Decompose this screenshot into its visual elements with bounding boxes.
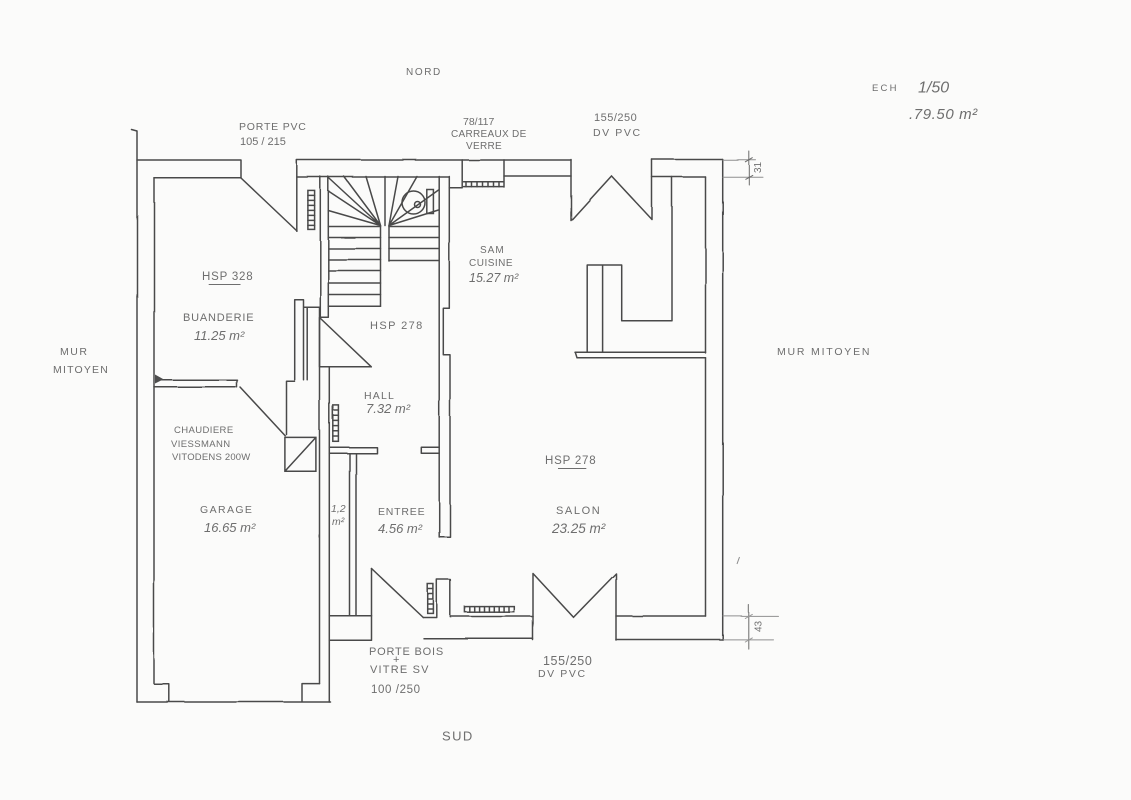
svg-text:7.32 m²: 7.32 m² xyxy=(366,401,411,416)
svg-text:MUR MITOYEN: MUR MITOYEN xyxy=(777,346,871,358)
svg-text:ECH: ECH xyxy=(872,83,899,94)
svg-text:4.56 m²: 4.56 m² xyxy=(378,521,423,536)
svg-text:VITRE SV: VITRE SV xyxy=(370,664,430,676)
svg-text:HSP 278: HSP 278 xyxy=(370,320,424,332)
svg-text:23.25 m²: 23.25 m² xyxy=(551,521,606,536)
svg-text:.79.50 m²: .79.50 m² xyxy=(909,106,978,123)
svg-text:GARAGE: GARAGE xyxy=(200,504,253,516)
svg-text:SUD: SUD xyxy=(442,729,474,744)
svg-text:HSP 278: HSP 278 xyxy=(545,455,596,467)
svg-text:BUANDERIE: BUANDERIE xyxy=(183,312,254,324)
svg-text:VIESSMANN: VIESSMANN xyxy=(171,439,231,450)
svg-text:ENTREE: ENTREE xyxy=(378,506,425,518)
svg-text:CHAUDIERE: CHAUDIERE xyxy=(174,425,234,436)
svg-text:11.25 m²: 11.25 m² xyxy=(194,328,245,343)
svg-text:HSP 328: HSP 328 xyxy=(202,271,253,283)
svg-text:CARREAUX DE: CARREAUX DE xyxy=(451,129,527,140)
svg-text:43: 43 xyxy=(754,620,765,632)
svg-text:MUR: MUR xyxy=(60,346,88,358)
svg-text:155/250: 155/250 xyxy=(594,112,637,124)
svg-text:1,2: 1,2 xyxy=(331,503,346,515)
svg-text:78/117: 78/117 xyxy=(463,116,494,128)
svg-text:105 / 215: 105 / 215 xyxy=(240,136,286,148)
svg-text:31: 31 xyxy=(753,161,764,173)
svg-text:DV PVC: DV PVC xyxy=(538,668,587,680)
svg-text:155/250: 155/250 xyxy=(543,654,592,668)
svg-text:PORTE PVC: PORTE PVC xyxy=(239,121,307,133)
svg-text:PORTE BOIS: PORTE BOIS xyxy=(369,646,444,658)
svg-text:SAM: SAM xyxy=(480,245,505,256)
svg-text:1/50: 1/50 xyxy=(918,80,949,97)
svg-text:m²: m² xyxy=(332,516,345,528)
svg-text:CUISINE: CUISINE xyxy=(469,258,513,269)
svg-text:100 /250: 100 /250 xyxy=(371,684,421,696)
svg-text:VITODENS 200W: VITODENS 200W xyxy=(172,452,250,463)
svg-text:NORD: NORD xyxy=(406,67,442,78)
svg-text:VERRE: VERRE xyxy=(466,141,502,152)
svg-text:MITOYEN: MITOYEN xyxy=(53,364,109,376)
svg-text:DV PVC: DV PVC xyxy=(593,127,642,139)
svg-text:SALON: SALON xyxy=(556,505,601,517)
svg-text:16.65 m²: 16.65 m² xyxy=(204,520,256,535)
svg-text:15.27 m²: 15.27 m² xyxy=(469,271,519,285)
